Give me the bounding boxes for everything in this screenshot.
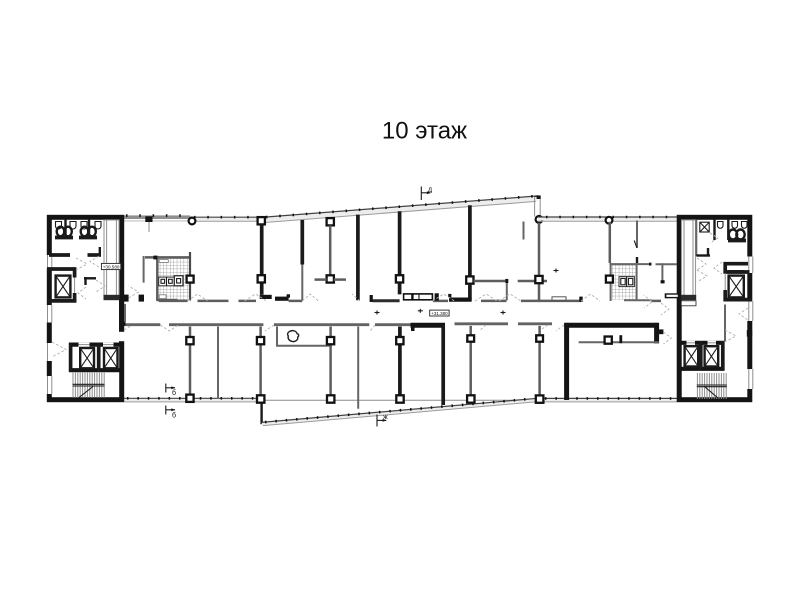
svg-text:+31.380: +31.380 — [431, 311, 448, 316]
svg-text:10 этаж: 10 этаж — [382, 118, 467, 145]
svg-text:д: д — [428, 187, 432, 194]
svg-text:б: б — [172, 412, 176, 420]
svg-text:+30.580: +30.580 — [103, 264, 120, 269]
svg-text:б: б — [172, 389, 176, 397]
svg-text:ж: ж — [383, 414, 388, 421]
